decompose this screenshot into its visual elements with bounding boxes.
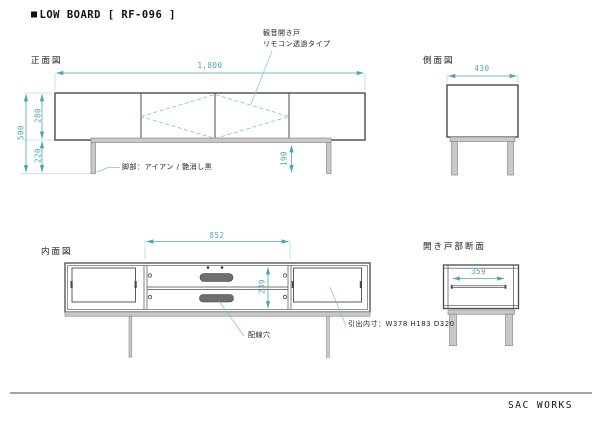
shelf-pin: [451, 285, 453, 289]
door-type-annotation: 観音開き戸 リモコン透過タイプ: [263, 28, 331, 50]
technical-drawing-canvas: [0, 0, 600, 424]
hinge-mark: [71, 281, 73, 288]
drawing-sheet: ■ LOW BOARD [ RF-096 ] 正面図 側面図 内面図 開き戸部断…: [0, 0, 600, 424]
drawer-size-annotation: 引出内寸：W378 H183 D320: [348, 319, 455, 330]
page-title-text: LOW BOARD [ RF-096 ]: [40, 9, 176, 21]
inner-view: [65, 240, 370, 357]
section-view-label: 開き戸部断面: [423, 240, 486, 252]
dim-center-width-852: 852: [200, 231, 234, 240]
side-view: [447, 74, 518, 175]
wiring-hole-annotation: 配線穴: [248, 330, 271, 341]
dim-body-height-280: 280: [34, 99, 43, 133]
maker-name: SAC WORKS: [508, 400, 573, 411]
dim-inner-depth-359: 359: [461, 267, 496, 276]
screw-hole: [221, 266, 224, 269]
hinge-mark: [360, 281, 362, 288]
dim-inner-height-239: 239: [258, 270, 267, 304]
section-leg-frame: [448, 310, 515, 346]
front-view-label: 正面図: [31, 54, 63, 66]
page-title: ■ LOW BOARD [ RF-096 ]: [31, 9, 176, 21]
side-view-label: 側面図: [423, 54, 455, 66]
front-cabinet-body: [55, 93, 365, 140]
dim-leg-clearance-190: 190: [280, 142, 289, 176]
shelf-pin: [148, 295, 151, 298]
hinge-mark: [292, 281, 294, 288]
shelf-pin: [283, 295, 286, 298]
screw-hole: [207, 266, 210, 269]
section-shelf: [452, 286, 505, 288]
door-type-line2: リモコン透過タイプ: [263, 39, 331, 50]
section-view: [444, 265, 519, 346]
dim-depth-430: 430: [467, 64, 497, 73]
dim-total-height-500: 500: [17, 116, 26, 150]
title-bullet-icon: ■: [31, 10, 38, 20]
door-type-line1: 観音開き戸: [263, 28, 331, 39]
leg-annotation-leader: [97, 168, 120, 173]
hinge-mark: [135, 281, 137, 288]
dim-leg-height-220: 220: [34, 139, 43, 173]
inner-view-label: 内面図: [41, 245, 73, 257]
leg-material-annotation: 脚部：アイアン / 艶消し黒: [122, 162, 212, 173]
dim-width-1800: 1,800: [193, 61, 227, 70]
inner-cabinet-body: [65, 263, 370, 312]
side-cabinet-body: [447, 85, 518, 137]
inner-leg-frame: [65, 312, 370, 357]
side-leg-frame: [450, 137, 515, 175]
shelf-pin: [505, 285, 507, 289]
wiring-hole-upper: [200, 274, 233, 282]
wiring-hole-lower: [200, 295, 234, 303]
shelf-pin: [148, 274, 151, 277]
shelf-pin: [283, 274, 286, 277]
